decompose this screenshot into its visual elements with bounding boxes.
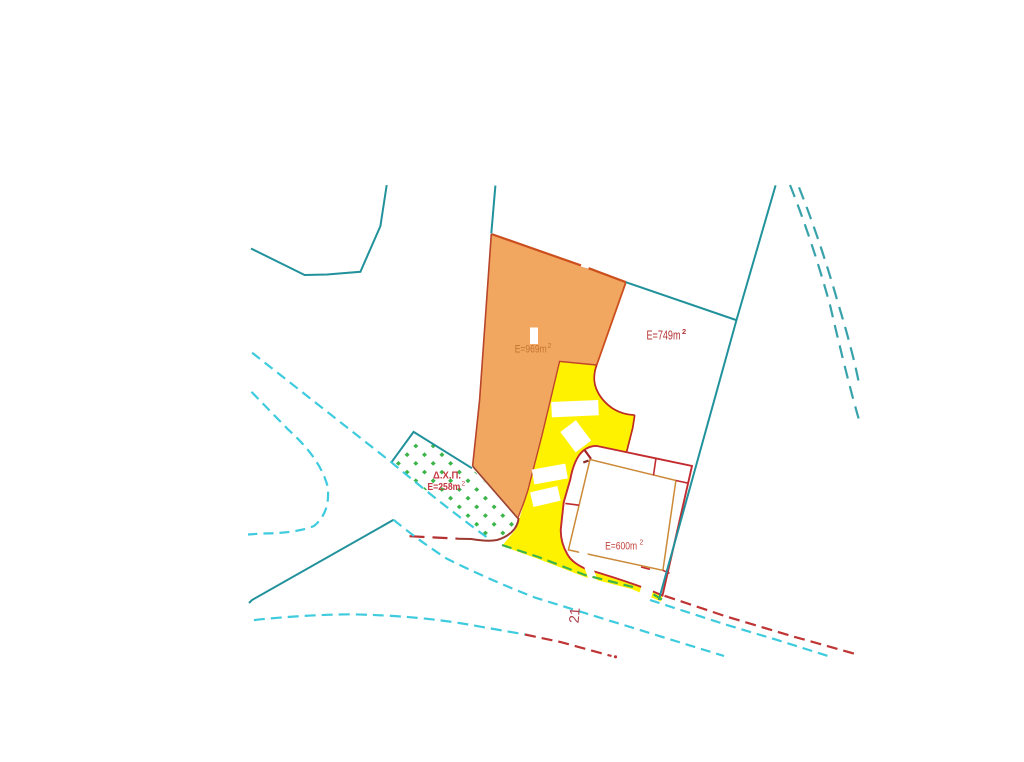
svg-text:21: 21 [566, 607, 583, 624]
svg-text:2: 2 [682, 327, 686, 336]
svg-text:E=969m: E=969m [515, 344, 547, 356]
svg-text:E=749m: E=749m [647, 329, 681, 343]
svg-text:2: 2 [462, 481, 466, 488]
svg-text:2: 2 [548, 343, 552, 350]
svg-text:E=600m: E=600m [605, 541, 637, 553]
svg-text:2: 2 [640, 540, 644, 547]
svg-text:E=258m: E=258m [427, 481, 460, 493]
